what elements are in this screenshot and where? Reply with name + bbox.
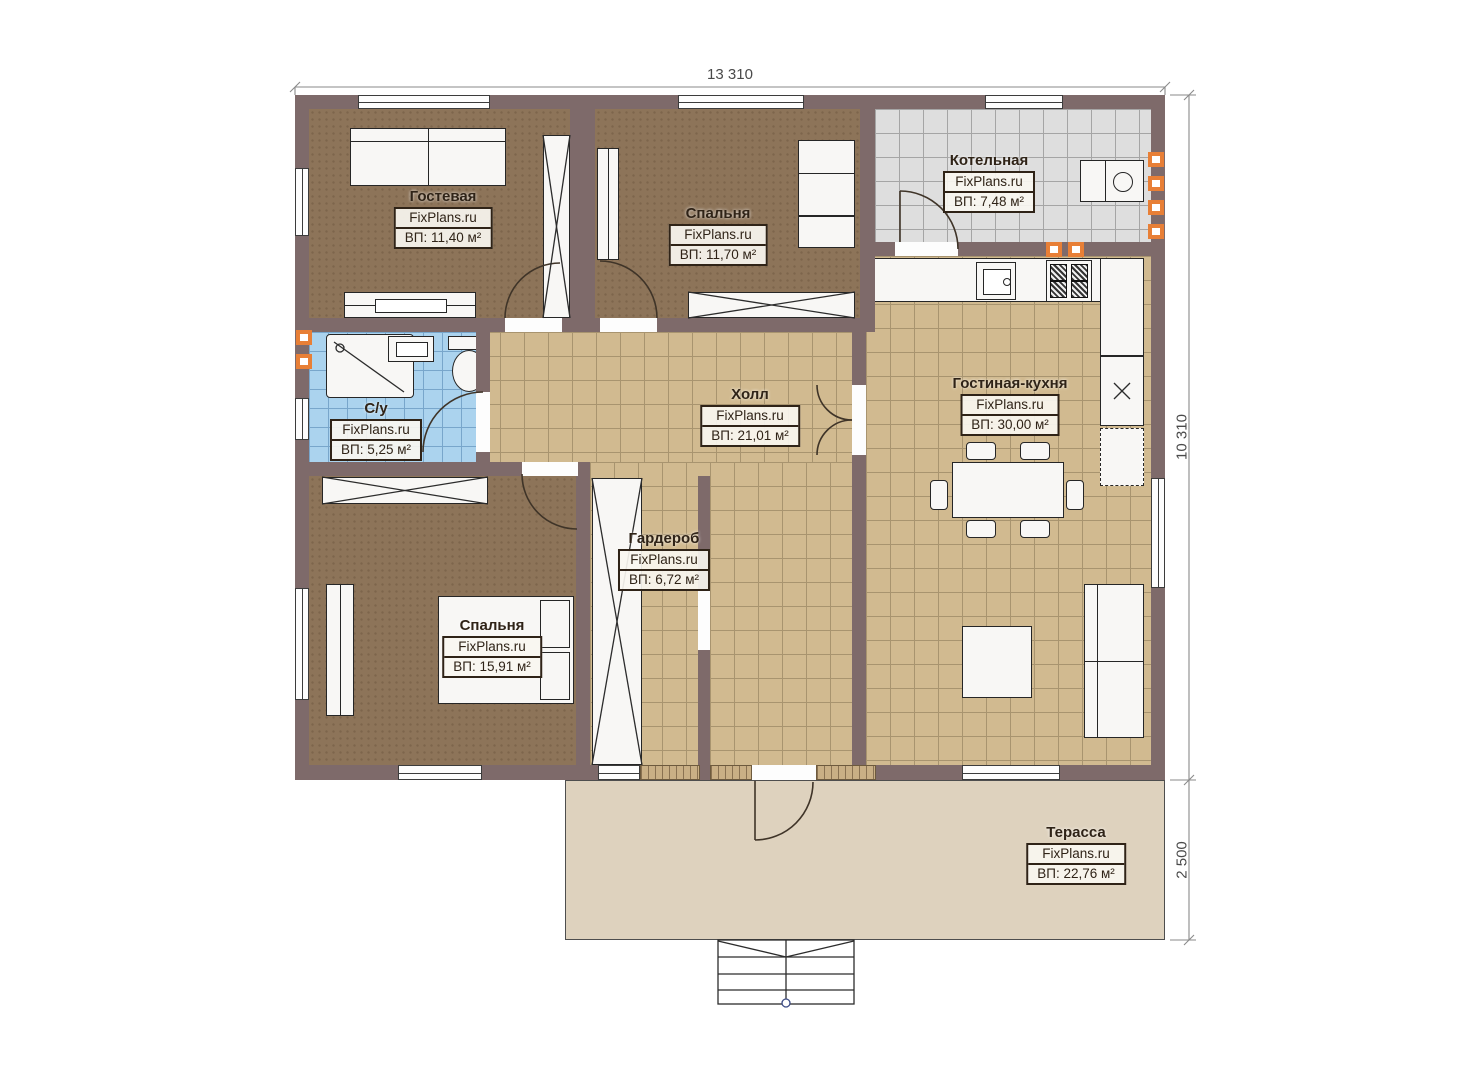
dimension-top: 13 310 <box>707 66 753 83</box>
window <box>678 95 804 109</box>
stove <box>1046 260 1092 302</box>
bathroom-sink <box>388 336 434 362</box>
floor-plan: Гостевая FixPlans.ruВП: 11,40 м² Спальня… <box>0 0 1473 1080</box>
room-label-bedroom-top: Спальня FixPlans.ruВП: 11,70 м² <box>669 205 768 266</box>
chair <box>1020 442 1050 460</box>
entrance-door-opening <box>752 765 816 780</box>
room-label-bathroom: С/у FixPlans.ruВП: 5,25 м² <box>330 400 422 461</box>
vent-grille <box>1148 152 1164 167</box>
wall <box>562 318 600 332</box>
room-label-bedroom-bottom: Спальня FixPlans.ruВП: 15,91 м² <box>442 617 542 678</box>
window <box>598 765 640 780</box>
kitchen-cabinet-dashed <box>1100 428 1144 486</box>
washing-machine <box>1080 160 1144 202</box>
vent-grille <box>1068 242 1084 257</box>
wall <box>476 332 490 392</box>
tv-stand-bedroom-top <box>597 148 619 260</box>
room-label-terrace: Терасса FixPlans.ruВП: 22,76 м² <box>1026 824 1126 885</box>
dimension-right: 10 310 <box>1174 414 1191 460</box>
dining-table <box>952 462 1064 518</box>
kitchen-sink <box>976 262 1016 300</box>
door-opening <box>522 462 578 476</box>
window <box>295 398 309 440</box>
wall <box>1151 95 1165 780</box>
dresser-guest <box>344 292 476 318</box>
double-door-opening <box>852 385 866 455</box>
window <box>358 95 490 109</box>
window <box>295 168 309 236</box>
closet-bedroom-top <box>688 292 855 318</box>
wall <box>309 318 505 332</box>
threshold-sidelight <box>640 765 700 780</box>
pillow <box>540 600 570 648</box>
pillow <box>540 652 570 700</box>
chair <box>1020 520 1050 538</box>
room-label-guest: Гостевая FixPlans.ruВП: 11,40 м² <box>394 188 493 249</box>
vent-grille <box>296 330 312 345</box>
closet-bedroom-bottom <box>322 477 488 504</box>
vent-grille <box>1148 200 1164 215</box>
window <box>962 765 1060 780</box>
vent-grille <box>1148 224 1164 239</box>
chair <box>930 480 948 510</box>
chair <box>966 520 996 538</box>
wardrobe-closet <box>592 478 642 765</box>
wardrobe-opening <box>698 590 710 650</box>
vent-grille <box>1148 176 1164 191</box>
entry-stairs <box>718 940 854 1007</box>
threshold-sidelight <box>710 765 752 780</box>
vent-grille <box>296 354 312 369</box>
wall <box>860 109 875 332</box>
wall <box>698 650 710 765</box>
window <box>295 588 309 700</box>
wall <box>852 455 866 765</box>
door-opening <box>600 318 657 332</box>
wall <box>576 462 590 765</box>
living-sofa <box>1084 584 1144 738</box>
wall <box>570 109 595 332</box>
wall <box>875 242 895 256</box>
window <box>398 765 482 780</box>
room-label-hall: Холл FixPlans.ruВП: 21,01 м² <box>700 386 800 447</box>
wall <box>852 332 866 385</box>
wall <box>309 462 522 476</box>
tv-stand-bedroom-bottom <box>326 584 354 716</box>
dimension-terrace: 2 500 <box>1174 841 1191 879</box>
room-label-kitchen-living: Гостиная-кухня FixPlans.ruВП: 30,00 м² <box>953 375 1068 436</box>
door-opening <box>505 318 562 332</box>
room-label-boiler: Котельная FixPlans.ruВП: 7,48 м² <box>943 152 1035 213</box>
threshold-sidelight <box>816 765 876 780</box>
fridge <box>1100 356 1144 426</box>
window <box>1151 478 1165 588</box>
wall <box>657 318 860 332</box>
sofa-guest <box>350 128 506 186</box>
door-opening <box>476 392 490 452</box>
hall-floor <box>476 332 866 462</box>
coffee-table <box>962 626 1032 698</box>
wardrobe-bedroom-top <box>798 140 855 248</box>
window <box>985 95 1063 109</box>
chair <box>966 442 996 460</box>
vent-grille <box>1046 242 1062 257</box>
wall <box>476 452 490 462</box>
kitchen-cabinet-column <box>1100 258 1144 356</box>
closet-guest <box>543 135 570 318</box>
room-label-wardrobe: Гардероб FixPlans.ruВП: 6,72 м² <box>618 530 710 591</box>
corridor-floor <box>710 462 866 765</box>
door-opening <box>895 242 958 256</box>
chair <box>1066 480 1084 510</box>
